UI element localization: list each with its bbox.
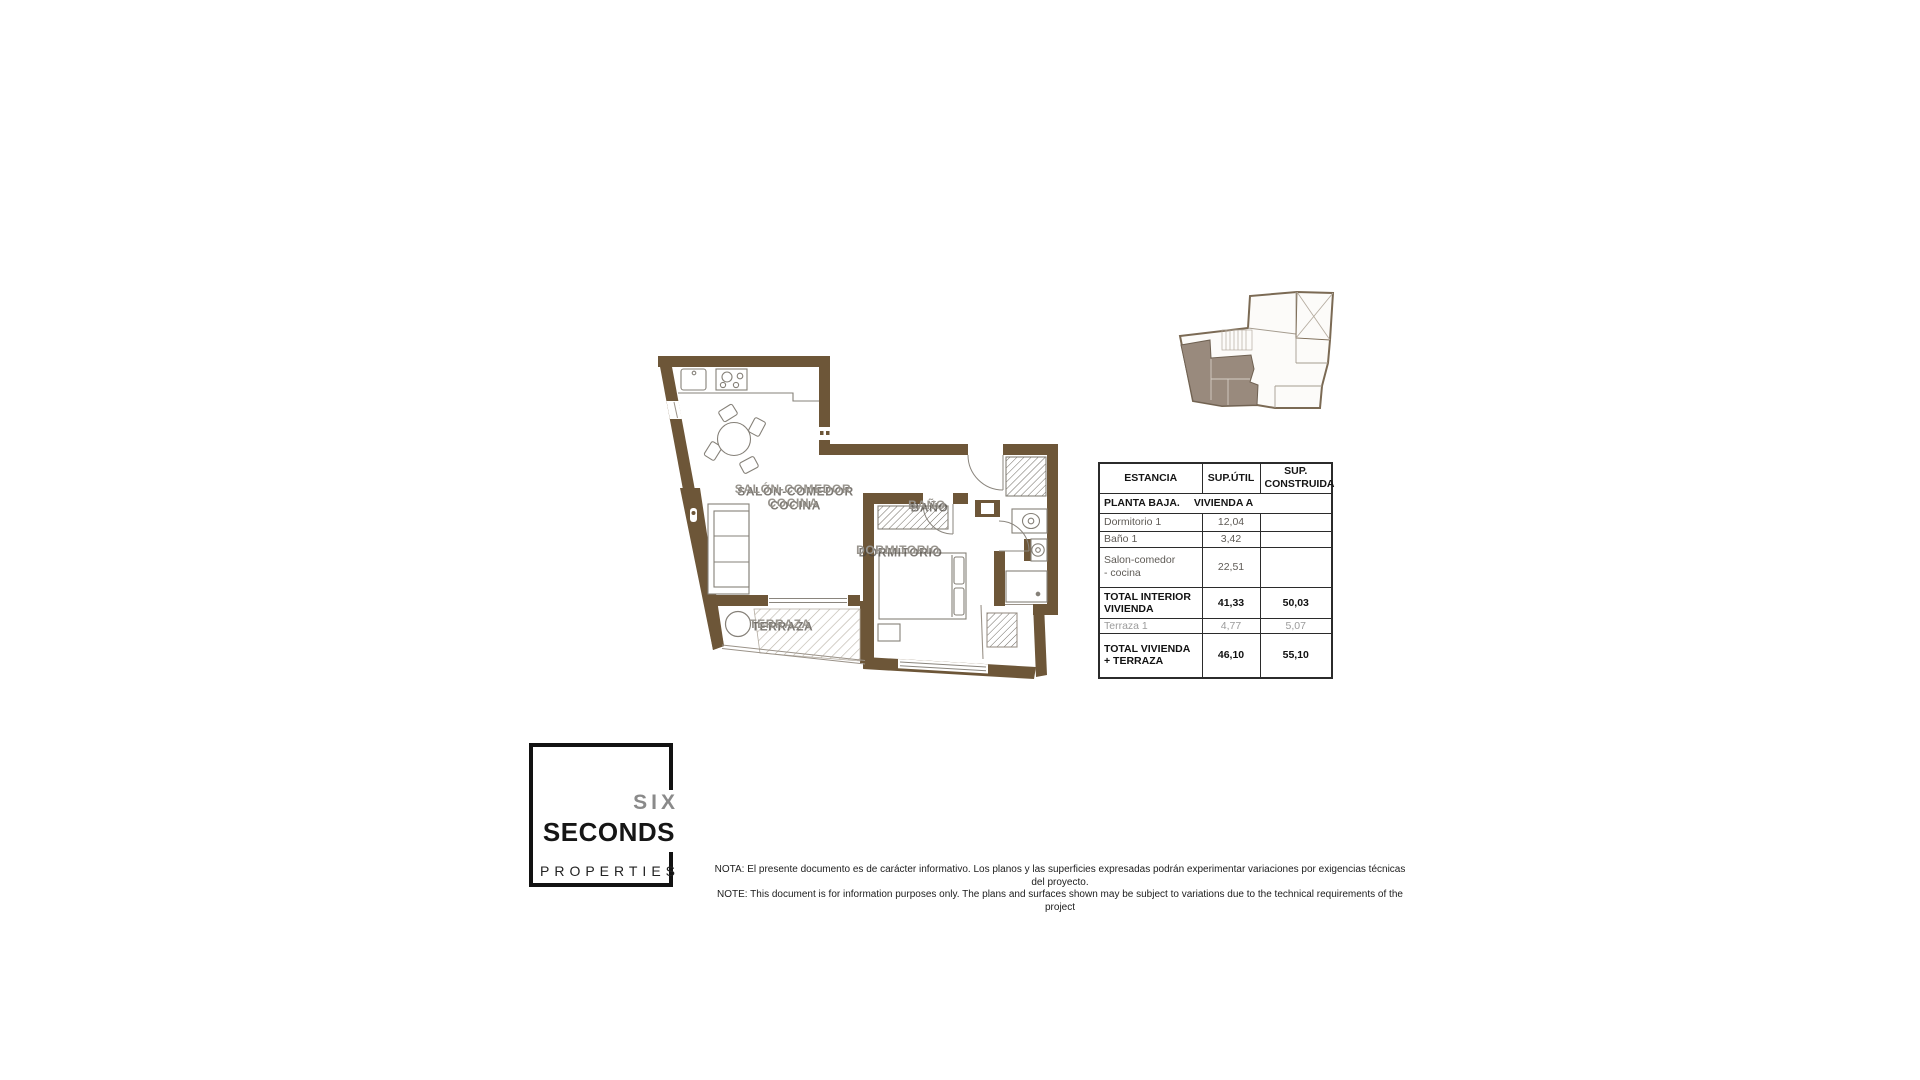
label-cocina: COCINA: [768, 496, 819, 510]
floorplan-document-page: SALÓN-COMEDOR SALÓN-COMEDOR COCINA COCIN…: [0, 0, 1920, 1080]
cell-util: 22,51: [1202, 547, 1260, 587]
header-sup-construida: SUP. CONSTRUIDA: [1260, 463, 1332, 493]
table-total-row: TOTAL VIVIENDA + TERRAZA 46,10 55,10: [1099, 633, 1332, 678]
key-plan: [1165, 283, 1365, 423]
sofa: [708, 504, 749, 594]
disclaimer: NOTA: El presente documento es de caráct…: [710, 864, 1410, 914]
table-row: Dormitorio 1 12,04: [1099, 513, 1332, 531]
label-salon: SALÓN-COMEDOR: [735, 481, 851, 496]
cell-room: Salon-comedor - cocina: [1099, 547, 1202, 587]
cell-construida: 50,03: [1260, 587, 1332, 618]
floor-plan-drawing: SALÓN-COMEDOR SALÓN-COMEDOR COCINA COCIN…: [650, 343, 1090, 683]
cell-util: 4,77: [1202, 618, 1260, 633]
nightstand: [878, 624, 900, 641]
header-sup-util: SUP.ÚTIL: [1202, 463, 1260, 493]
logo-seconds: SECONDS: [543, 817, 675, 848]
shower-tray: [1006, 571, 1047, 602]
cell-util: 46,10: [1202, 633, 1260, 678]
terrace-table: [726, 612, 751, 637]
pillow: [954, 588, 964, 615]
six-seconds-properties-logo: SIX SECONDS PROPERTIES: [529, 743, 673, 887]
label-bano: BAÑO: [908, 497, 946, 512]
table-row: Salon-comedor - cocina 22,51: [1099, 547, 1332, 587]
wall-vent: [817, 427, 832, 440]
section-unit: VIVIENDA A: [1194, 497, 1253, 509]
cell-room: Dormitorio 1: [1099, 513, 1202, 531]
dining-table: [718, 423, 751, 456]
kitchen-counter: [678, 393, 819, 401]
cell-util: 41,33: [1202, 587, 1260, 618]
cell-util: 3,42: [1202, 531, 1260, 547]
logo-properties: PROPERTIES: [540, 863, 680, 879]
cell-construida: [1260, 513, 1332, 531]
cell-room: Terraza 1: [1099, 618, 1202, 633]
balcony-door-gap: [768, 595, 848, 606]
cell-construida: [1260, 547, 1332, 587]
header-estancia: ESTANCIA: [1099, 463, 1202, 493]
bed: [879, 553, 966, 619]
faucet-icon: [692, 371, 696, 375]
cell-room: TOTAL INTERIOR VIVIENDA: [1099, 587, 1202, 618]
cell-construida: [1260, 531, 1332, 547]
label-dormitorio: DORMITORIO: [856, 543, 940, 557]
disclaimer-line-es: NOTA: El presente documento es de caráct…: [710, 864, 1410, 889]
table-row: Terraza 1 4,77 5,07: [1099, 618, 1332, 633]
kitchen: [678, 369, 819, 401]
disclaimer-line-en: NOTE: This document is for information p…: [710, 889, 1410, 914]
cell-construida: 5,07: [1260, 618, 1332, 633]
lower-closet: [987, 613, 1017, 647]
door-jamb-block: [981, 503, 994, 514]
surface-area-table: ESTANCIA SUP.ÚTIL SUP. CONSTRUIDA PLANTA…: [1098, 462, 1333, 679]
cell-room: TOTAL VIVIENDA + TERRAZA: [1099, 633, 1202, 678]
table-header-row: ESTANCIA SUP.ÚTIL SUP. CONSTRUIDA: [1099, 463, 1332, 493]
label-terraza: TERRAZA: [749, 617, 811, 631]
entry-door-arc: [968, 455, 1003, 490]
logo-six: SIX: [633, 791, 679, 815]
section-floor: PLANTA BAJA.: [1104, 497, 1180, 509]
dining-set: [704, 404, 766, 474]
cell-util: 12,04: [1202, 513, 1260, 531]
pillow: [954, 557, 964, 584]
table-total-row: TOTAL INTERIOR VIVIENDA 41,33 50,03: [1099, 587, 1332, 618]
table-row: Baño 1 3,42: [1099, 531, 1332, 547]
bathroom-closet: [1006, 457, 1046, 496]
table-section-row: PLANTA BAJA.VIVIENDA A: [1099, 493, 1332, 513]
cell-room: Baño 1: [1099, 531, 1202, 547]
cell-construida: 55,10: [1260, 633, 1332, 678]
